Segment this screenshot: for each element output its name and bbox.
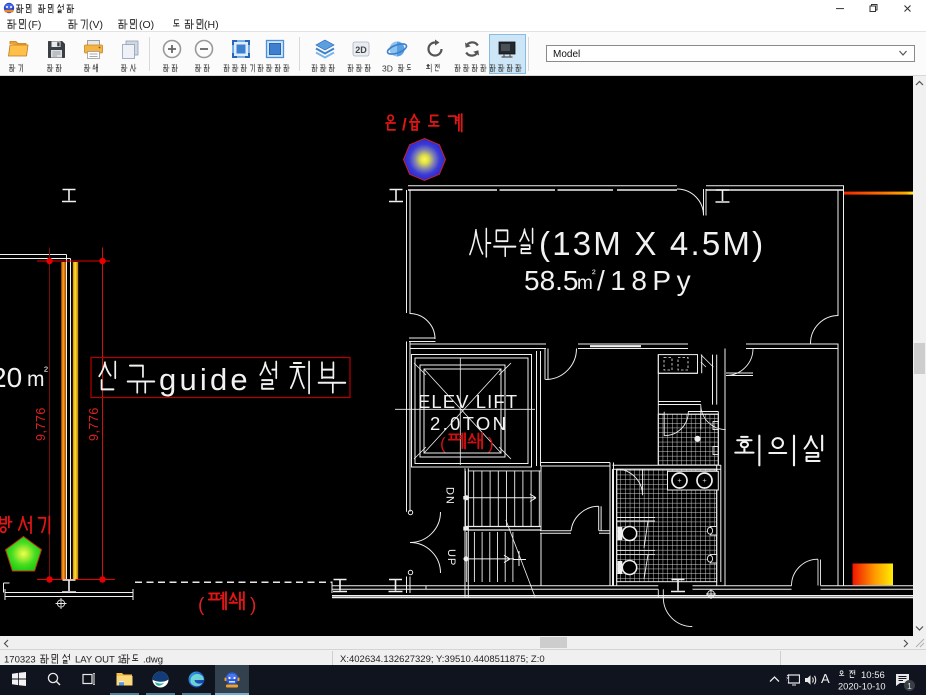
svg-text:DN: DN: [444, 487, 456, 505]
svg-text:(F): (F): [28, 19, 41, 31]
svg-text:.dwg: .dwg: [143, 655, 163, 666]
svg-text:2.0TON: 2.0TON: [430, 413, 506, 434]
svg-text:²: ²: [44, 364, 48, 378]
svg-text:ELEV LIFT: ELEV LIFT: [418, 391, 517, 412]
svg-text:m: m: [577, 273, 593, 294]
svg-text:(13M X 4.5M): (13M X 4.5M): [539, 225, 765, 262]
svg-text:(V): (V): [89, 19, 103, 31]
svg-text:(H): (H): [204, 19, 219, 31]
svg-text:20: 20: [0, 362, 22, 393]
svg-text:m: m: [27, 368, 45, 391]
svg-text:): ): [250, 595, 256, 616]
svg-text:guide: guide: [159, 362, 251, 397]
svg-text:58.5: 58.5: [524, 265, 579, 296]
svg-text:(: (: [198, 595, 205, 616]
svg-text:): ): [488, 434, 494, 453]
svg-text:170323: 170323: [4, 655, 36, 666]
svg-text:10:56: 10:56: [861, 670, 885, 681]
svg-text:9,776: 9,776: [34, 407, 48, 441]
svg-text:/18Py: /18Py: [597, 265, 696, 296]
svg-text:(O): (O): [139, 19, 154, 31]
svg-text:²: ²: [592, 268, 596, 280]
svg-text:3D: 3D: [382, 64, 393, 74]
svg-text:/: /: [402, 115, 407, 134]
svg-text:2020-10-10: 2020-10-10: [838, 682, 886, 692]
svg-text:UP: UP: [445, 549, 457, 566]
svg-text:9,776: 9,776: [87, 407, 101, 441]
svg-text:(: (: [440, 434, 446, 453]
svg-text:2D: 2D: [355, 45, 367, 55]
svg-text:1: 1: [907, 681, 912, 691]
svg-text:LAY OUT 1: LAY OUT 1: [75, 655, 123, 666]
